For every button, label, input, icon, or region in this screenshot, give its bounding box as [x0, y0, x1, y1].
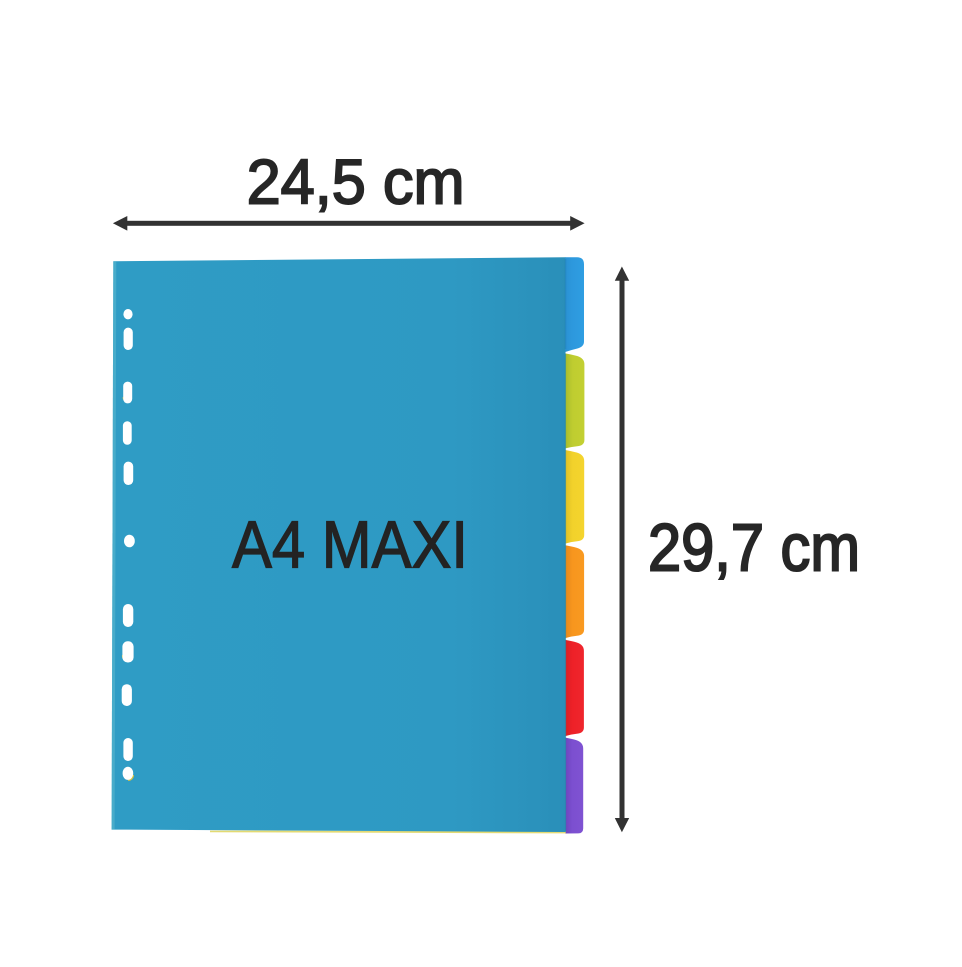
svg-text:A4 MAXI: A4 MAXI — [232, 507, 468, 582]
svg-text:24,5 cm: 24,5 cm — [247, 148, 465, 218]
svg-text:29,7 cm: 29,7 cm — [648, 510, 860, 585]
